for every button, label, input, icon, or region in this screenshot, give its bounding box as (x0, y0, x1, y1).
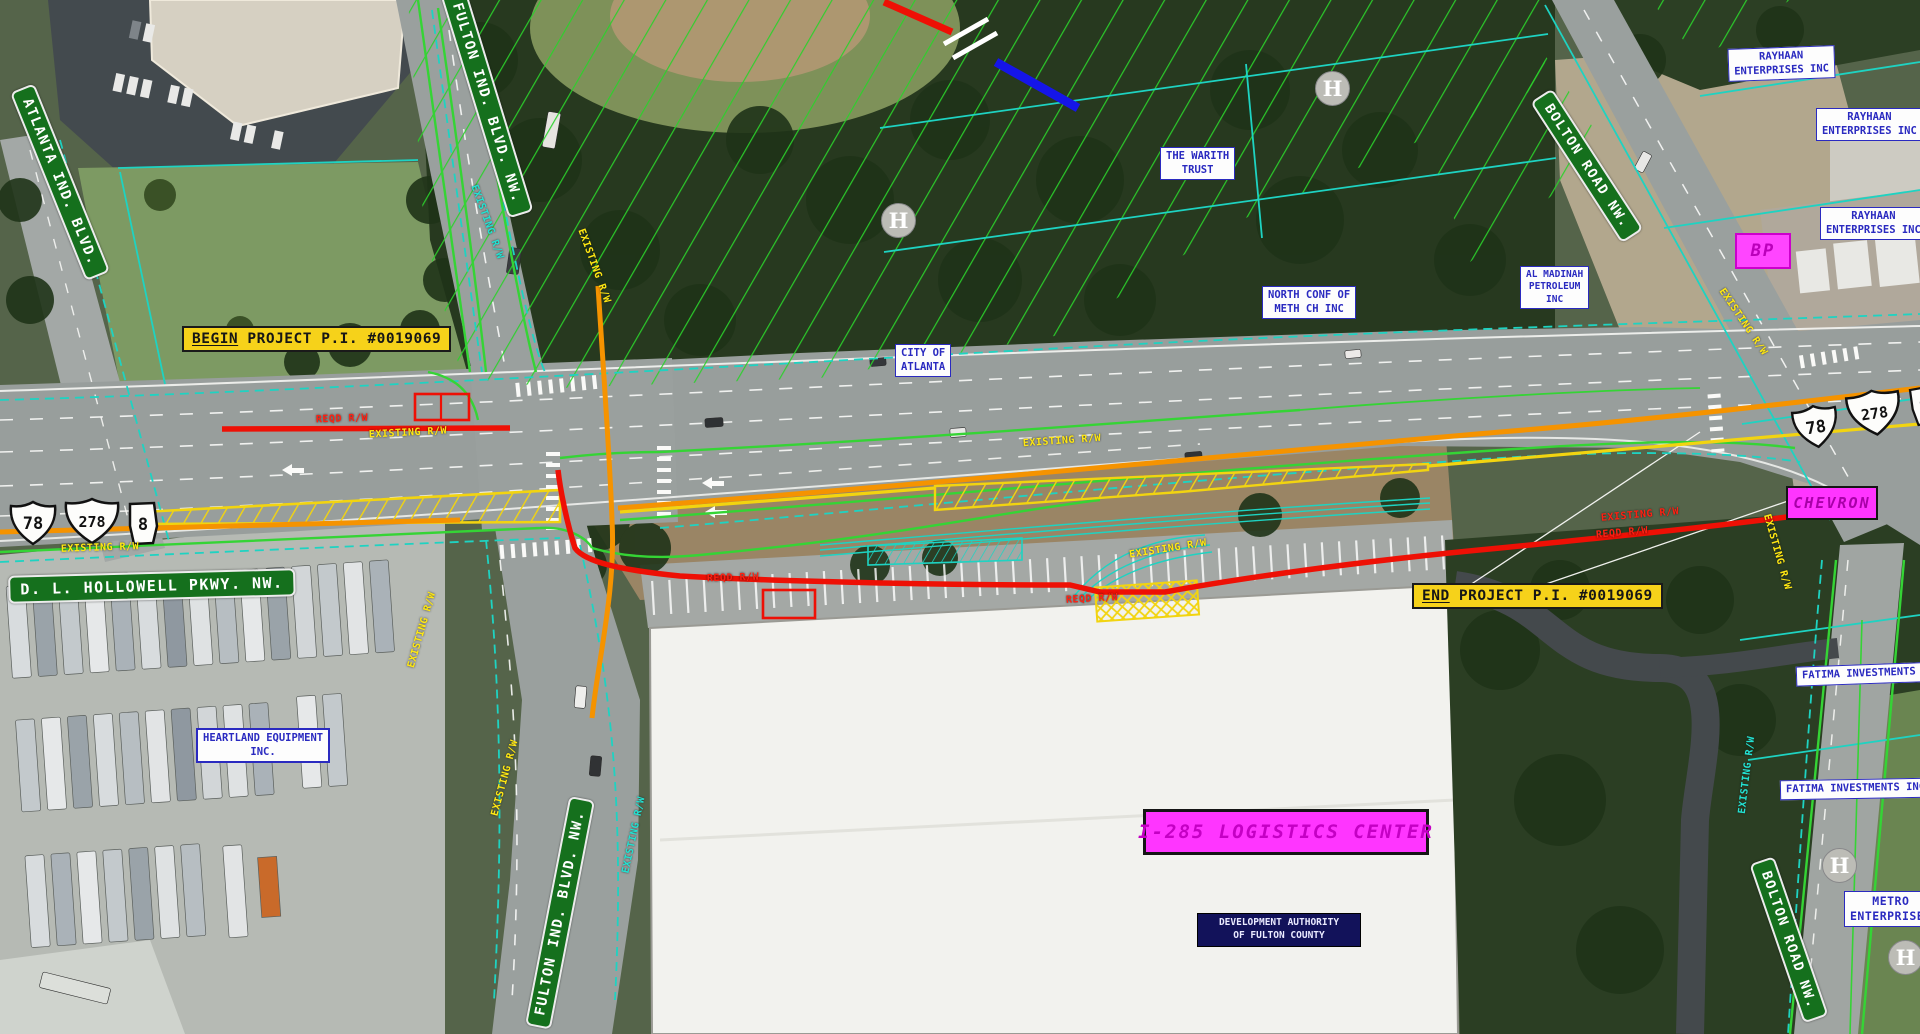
bp-station-label: BP (1735, 233, 1791, 269)
parcel-line: ENTERPRISES INC (1734, 62, 1829, 79)
parcel-line: HEARTLAND EQUIPMENT (203, 732, 323, 746)
parcel-line: THE WARITH (1166, 150, 1229, 164)
parcel-label-rayhaan-1: RAYHAAN ENTERPRISES INC (1727, 45, 1835, 82)
shield-number: 78 (1788, 401, 1844, 453)
parcel-label-heartland: HEARTLAND EQUIPMENT INC. (196, 728, 330, 763)
required-rw-text: REQD R/W (707, 572, 760, 585)
begin-word: BEGIN (192, 331, 238, 347)
development-authority-label: DEVELOPMENT AUTHORITY OF FULTON COUNTY (1197, 913, 1361, 947)
end-rest: PROJECT P.I. #0019069 (1450, 588, 1653, 604)
parcel-label-north-conf: NORTH CONF OF METH CH INC (1262, 286, 1356, 319)
parcel-label-rayhaan-3: RAYHAAN ENTERPRISES INC (1820, 207, 1920, 240)
parcel-line: METH CH INC (1268, 303, 1350, 317)
h-marker-icon: H (1888, 940, 1920, 975)
h-marker-icon: H (1315, 71, 1350, 106)
shield-number: 278 (63, 497, 121, 545)
parcel-line: INC. (203, 746, 323, 760)
us-route-78-shield-icon: 78 (1788, 401, 1844, 453)
parcel-line: CITY OF (901, 347, 945, 361)
h-marker-icon: H (1822, 848, 1857, 883)
parcel-line: ATLANTA (901, 361, 945, 375)
us-route-278-shield-icon: 278 (63, 497, 121, 545)
end-project-label: END PROJECT P.I. #0019069 (1412, 583, 1663, 609)
parcel-label-rayhaan-2: RAYHAAN ENTERPRISES INC (1816, 108, 1920, 141)
us-route-78-shield-icon: 78 (8, 500, 58, 546)
parcel-line: INC (1526, 294, 1583, 306)
parcel-label-metro-enterprises: METRO ENTERPRISES (1844, 891, 1920, 927)
end-word: END (1422, 588, 1450, 604)
begin-rest: PROJECT P.I. #0019069 (238, 331, 441, 347)
parcel-label-warith-trust: THE WARITH TRUST (1160, 147, 1235, 180)
parcel-line: NORTH CONF OF (1268, 289, 1350, 303)
required-rw-text: REQD R/W (316, 413, 369, 426)
aerial-plan-sheet: BEGIN PROJECT P.I. #0019069 END PROJECT … (0, 0, 1920, 1034)
shield-number: 8 (124, 500, 162, 547)
parcel-line: AL MADINAH (1526, 269, 1583, 281)
parcel-line: ENTERPRISES INC (1826, 224, 1920, 238)
ga-route-8-shield-icon: 8 (124, 500, 162, 547)
parcel-label-al-madinah: AL MADINAH PETROLEUM INC (1520, 266, 1589, 309)
shield-number: 78 (8, 500, 58, 546)
parcel-line: RAYHAAN (1826, 210, 1920, 224)
dev-authority-line: OF FULTON COUNTY (1200, 930, 1358, 943)
parcel-label-city-of-atlanta: CITY OF ATLANTA (895, 344, 951, 377)
parcel-line: PETROLEUM (1526, 281, 1583, 293)
begin-project-label: BEGIN PROJECT P.I. #0019069 (182, 326, 451, 352)
parcel-line: ENTERPRISES (1850, 909, 1920, 924)
ga-route-8-shield-icon: 8 (1904, 381, 1920, 431)
parcel-label-fatima-1: FATIMA INVESTMENTS INC (1796, 661, 1920, 686)
parcel-line: ENTERPRISES INC (1822, 125, 1917, 139)
chevron-station-label: CHEVRON (1786, 486, 1878, 520)
parcel-line: METRO (1850, 894, 1920, 909)
shield-number: 278 (1842, 385, 1906, 441)
h-marker-icon: H (881, 203, 916, 238)
logistics-center-label: I-285 LOGISTICS CENTER (1143, 809, 1429, 855)
parcel-label-fatima-2: FATIMA INVESTMENTS INC (1780, 778, 1920, 800)
dev-authority-line: DEVELOPMENT AUTHORITY (1200, 917, 1358, 930)
parcel-line: TRUST (1166, 164, 1229, 178)
us-route-278-shield-icon: 278 (1842, 385, 1906, 441)
parcel-line: RAYHAAN (1822, 111, 1917, 125)
shield-number: 8 (1904, 381, 1920, 431)
